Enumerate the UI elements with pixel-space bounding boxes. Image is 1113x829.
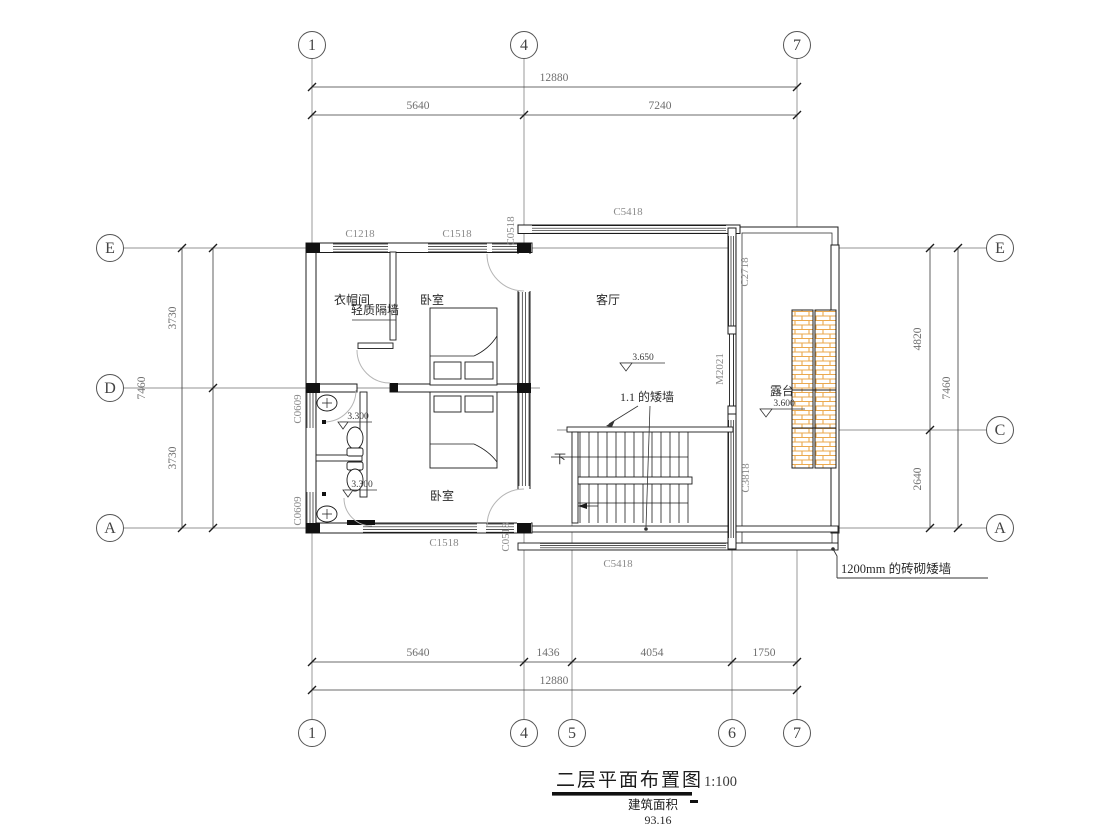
brick-low-wall-hatch	[792, 310, 813, 468]
dimension-lines	[182, 87, 958, 690]
elevation-living-value: 3.650	[632, 353, 654, 363]
dim-top-total: 12880	[540, 72, 569, 84]
label-c0518-bottom: C0518	[500, 522, 512, 552]
room-terrace: 露台	[770, 383, 794, 398]
stair-down-label: 下	[554, 452, 566, 466]
dim-left-seg-1: 3730	[167, 306, 179, 329]
stairs	[551, 427, 733, 523]
dim-left-seg-2: 3730	[167, 446, 179, 469]
drawing-scale: 1:100	[704, 774, 737, 790]
axis-1-bottom: 1	[308, 725, 316, 742]
brick-low-wall-hatch	[815, 310, 836, 468]
label-c1518-bottom: C1518	[429, 537, 459, 549]
bed-bottom	[430, 392, 497, 468]
pillow	[434, 396, 461, 412]
grid-bubbles	[97, 32, 1014, 747]
axis-D-left: D	[104, 380, 116, 397]
dim-bottom-seg-3: 4054	[641, 647, 664, 659]
elevation-terrace-value: 3.600	[773, 399, 795, 409]
floor-drain	[322, 492, 326, 496]
room-living: 客厅	[596, 292, 620, 307]
sink-lower	[317, 506, 337, 522]
closet-door-arc	[357, 350, 390, 383]
door-m2021-leaf	[730, 334, 734, 406]
label-c0609-lower: C0609	[292, 496, 304, 526]
label-c1218: C1218	[345, 228, 375, 240]
dim-right-seg-1: 4820	[912, 327, 924, 350]
axis-A-right: A	[994, 520, 1006, 537]
closet-door-leaf	[358, 343, 393, 349]
dim-right-seg-2: 2640	[912, 467, 924, 490]
axis-A-left: A	[104, 520, 116, 537]
pillow	[465, 396, 493, 412]
bedroom-block-walls	[306, 243, 532, 533]
dimension-ticks	[178, 83, 962, 694]
dim-bottom-seg-4: 1750	[753, 647, 776, 659]
drawing-title: 二层平面布置图	[556, 769, 703, 791]
dim-bottom-total: 12880	[540, 675, 569, 687]
stair-handrail	[578, 477, 692, 484]
label-c3818: C3818	[740, 463, 752, 493]
pillow	[434, 362, 461, 379]
area-value: 93.16	[645, 813, 672, 827]
dim-left-total: 7460	[136, 376, 148, 399]
axis-7-top: 7	[793, 37, 801, 54]
sink-upper	[317, 395, 337, 411]
partition-note: 轻质隔墙	[351, 303, 399, 317]
title-underline	[552, 792, 692, 796]
elevation-bath-upper-value: 3.300	[347, 412, 369, 422]
dim-top-seg-1: 5640	[407, 100, 430, 112]
elevation-bath-lower-value: 3.300	[351, 480, 373, 490]
dim-top-seg-2: 7240	[649, 100, 672, 112]
axis-5-bottom: 5	[568, 725, 576, 742]
low-wall-text: 1.1 的矮墙	[620, 389, 674, 404]
toilet-upper	[347, 427, 363, 456]
label-c5418-bottom: C5418	[603, 558, 633, 570]
room-bedroom-bottom: 卧室	[430, 488, 454, 503]
axis-E-right: E	[995, 240, 1005, 257]
label-m2021: M2021	[714, 353, 726, 385]
stair-direction-arrow	[578, 503, 587, 509]
floor-drain	[322, 420, 326, 424]
room-labels: 客厅 卧室 卧室 衣帽间 露台 轻质隔墙 下	[334, 292, 794, 503]
axis-4-top: 4	[520, 37, 528, 54]
leader-arrowhead	[606, 420, 615, 427]
dim-bottom-seg-2: 1436	[537, 647, 560, 659]
pillow	[465, 362, 493, 379]
bed-top	[430, 308, 497, 385]
title-block: 二层平面布置图 1:100 建筑面积 93.16	[552, 769, 737, 827]
label-c0518-top: C0518	[505, 216, 517, 246]
axis-1-top: 1	[308, 37, 316, 54]
axis-7-bottom: 7	[793, 725, 801, 742]
brick-wall-text: 1200mm 的砖砌矮墙	[841, 561, 951, 576]
label-c0609-upper: C0609	[292, 394, 304, 424]
label-c2718: C2718	[739, 257, 751, 287]
floor-plan-sheet: 12880 5640 7240 5640 1436 4054 1750 1288…	[0, 0, 1113, 829]
closet-partition-wall	[390, 252, 396, 340]
elevation-living: 3.650	[620, 353, 665, 371]
label-c1518-top: C1518	[442, 228, 472, 240]
dim-right-total: 7460	[941, 376, 953, 399]
grid-bubble-labels: 1 4 7 1 4 5 6 7 E D A E C A	[104, 37, 1006, 742]
dim-bottom-seg-1: 5640	[407, 647, 430, 659]
grid-axes	[124, 59, 986, 719]
room-bedroom-top: 卧室	[420, 292, 444, 307]
axis-4-bottom: 4	[520, 725, 528, 742]
axis-6-bottom: 6	[728, 725, 736, 742]
label-c5418-top: C5418	[613, 206, 643, 218]
brick-wall-note: 1200mm 的砖砌矮墙	[831, 547, 988, 578]
area-label: 建筑面积	[628, 797, 678, 812]
floor-plan-drawing: 12880 5640 7240 5640 1436 4054 1750 1288…	[0, 0, 1113, 829]
axis-E-left: E	[105, 240, 115, 257]
axis-C-right: C	[995, 422, 1006, 439]
